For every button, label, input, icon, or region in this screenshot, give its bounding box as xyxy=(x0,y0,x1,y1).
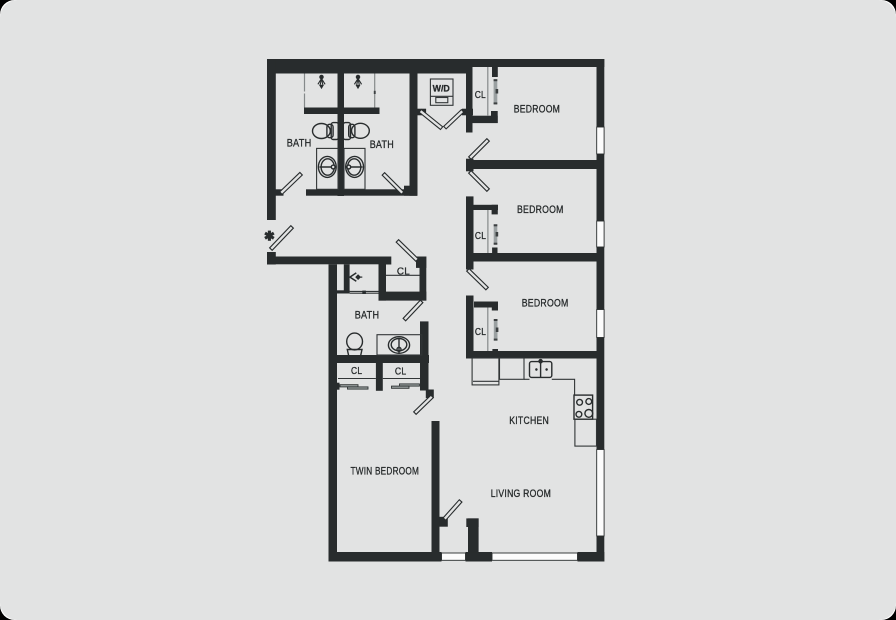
svg-text:TWIN BEDROOM: TWIN BEDROOM xyxy=(351,465,420,477)
svg-text:CL: CL xyxy=(475,327,486,338)
svg-text:LIVING ROOM: LIVING ROOM xyxy=(491,488,551,500)
svg-text:CL: CL xyxy=(475,90,486,101)
svg-text:W/D: W/D xyxy=(433,83,450,93)
svg-text:BATH: BATH xyxy=(370,139,394,151)
svg-text:BEDROOM: BEDROOM xyxy=(517,204,564,216)
svg-text:KITCHEN: KITCHEN xyxy=(509,415,549,427)
svg-text:BEDROOM: BEDROOM xyxy=(514,104,560,116)
svg-text:BATH: BATH xyxy=(287,138,312,150)
svg-text:CL: CL xyxy=(397,267,410,278)
svg-text:BATH: BATH xyxy=(355,309,380,321)
svg-text:CL: CL xyxy=(475,231,486,242)
svg-text:CL: CL xyxy=(351,366,362,377)
svg-text:BEDROOM: BEDROOM xyxy=(522,297,569,309)
svg-text:CL: CL xyxy=(395,366,407,377)
